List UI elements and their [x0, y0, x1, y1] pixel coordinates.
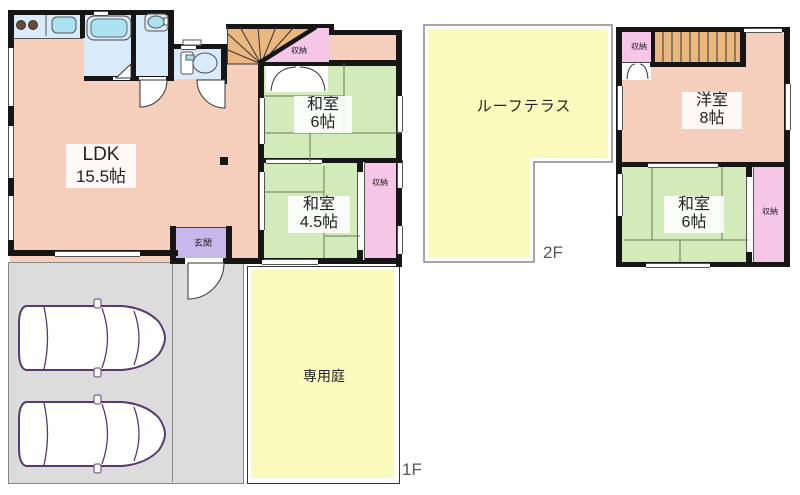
closet-double-doors	[271, 67, 325, 91]
car-icon	[19, 299, 165, 377]
toilet-window-icon	[183, 40, 201, 45]
car-icon	[19, 395, 165, 473]
terrace-label: ルーフテラス	[472, 98, 576, 115]
stairs-2f-treads	[663, 32, 735, 62]
bathroom-folding-door	[116, 64, 131, 78]
closet-45-label: 収納	[364, 178, 396, 187]
washitsu6-name: 和室	[307, 96, 339, 113]
washroom-door-arc	[140, 80, 167, 107]
washitsu6-2f-label: 和室 6帖	[664, 196, 724, 233]
floor1-label: 1F	[402, 460, 422, 480]
roof-terrace	[424, 25, 612, 262]
washitsu6-2f-size: 6帖	[682, 214, 707, 231]
yoshitsu8-label: 洋室 8帖	[682, 92, 742, 129]
ldk-label: LDK 15.5帖	[66, 144, 136, 188]
ldk-size: 15.5帖	[76, 167, 126, 186]
under-stair-closet	[259, 27, 329, 63]
ldk-name: LDK	[83, 144, 120, 165]
floor2-label: 2F	[543, 243, 563, 263]
plan-overlay	[0, 0, 800, 495]
floor-plan: LDK 15.5帖 和室 6帖 和室 4.5帖 収納 収納 玄関 専用庭 1F …	[0, 0, 800, 495]
closet-2f-side-label: 収納	[753, 207, 787, 216]
genkan-door-arc	[188, 263, 224, 299]
stove-burners-icon	[17, 21, 38, 30]
washitsu6-size: 6帖	[311, 114, 336, 131]
washitsu45-name: 和室	[303, 196, 335, 213]
closet-2f-folding-doors	[627, 64, 648, 79]
washitsu45-size: 4.5帖	[300, 214, 338, 231]
yoshitsu8-size: 8帖	[700, 110, 725, 127]
genkan-label: 玄関	[186, 238, 220, 248]
garden-label: 専用庭	[291, 368, 357, 384]
bathtub-icon	[87, 16, 131, 40]
kitchen-sink-icon	[46, 15, 76, 36]
washitsu45-label: 和室 4.5帖	[288, 196, 350, 233]
washitsu6-1f-label: 和室 6帖	[294, 96, 352, 133]
yoshitsu8-name: 洋室	[696, 92, 728, 109]
washbasin-icon	[145, 14, 168, 31]
closet-under-stairs-label: 収納	[282, 46, 316, 55]
washitsu6-2f-name: 和室	[678, 196, 710, 213]
toilet-icon	[181, 52, 217, 74]
closet-2f-top-label: 収納	[622, 42, 656, 51]
toilet-door-arc	[197, 80, 225, 108]
